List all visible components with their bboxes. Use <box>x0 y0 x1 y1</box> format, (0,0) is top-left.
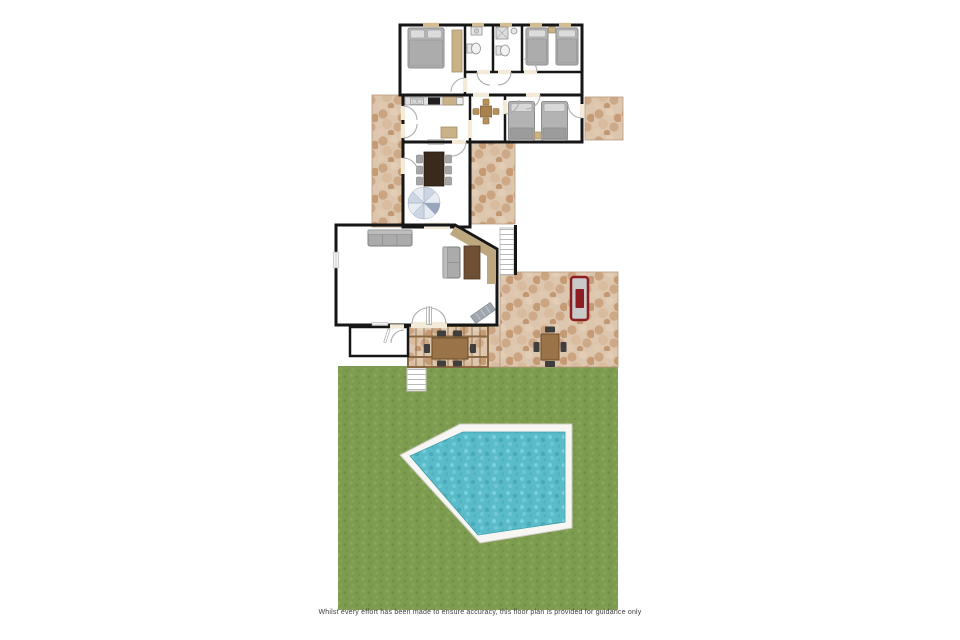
stone-terrace-right <box>585 97 623 140</box>
porch <box>350 324 408 356</box>
floor-plan-page: Whilst every effort has been made to ens… <box>0 0 960 640</box>
barbecue <box>571 277 588 320</box>
middle-row-block <box>401 93 584 144</box>
kitchen-sink <box>411 98 424 105</box>
dining-table <box>417 152 452 186</box>
twin-bed <box>526 28 548 65</box>
nightstand <box>549 27 556 33</box>
kitchen-counter <box>405 97 463 105</box>
stone-terrace-middle <box>470 143 515 224</box>
twin-bed <box>509 102 535 141</box>
bathroom-2-fixtures <box>496 27 517 56</box>
garden-steps <box>407 368 426 391</box>
kitchen-cabinet <box>441 127 457 138</box>
double-bed <box>408 28 444 68</box>
loveseat <box>443 247 460 278</box>
stone-terrace-left <box>372 95 403 227</box>
upper-bedroom-block <box>400 23 582 95</box>
disclaimer-text: Whilst every effort has been made to ens… <box>0 609 960 616</box>
nightstand <box>535 132 542 139</box>
twin-bed <box>542 102 568 141</box>
floor-plan-drawing <box>0 0 960 640</box>
sofa <box>368 230 412 246</box>
stove <box>428 98 440 105</box>
sideboard <box>464 246 480 279</box>
doormat <box>471 302 496 323</box>
exterior-steps <box>500 225 516 275</box>
dining-room <box>401 140 470 229</box>
living-room <box>334 225 497 328</box>
wardrobe <box>452 30 462 72</box>
spiral-staircase <box>408 187 440 219</box>
bathroom-1-fixtures <box>467 27 482 54</box>
french-doors <box>411 307 447 328</box>
twin-bed <box>556 28 578 65</box>
breakfast-table <box>473 99 499 124</box>
